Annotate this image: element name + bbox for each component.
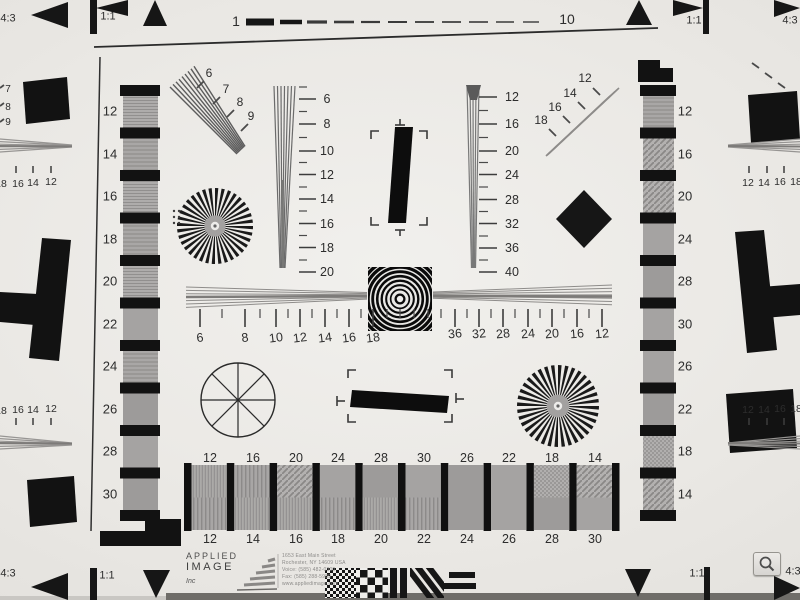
right-strip-labels-label: 18	[678, 445, 692, 458]
center-right-scale-ticks	[479, 97, 497, 272]
chart-shape	[246, 19, 274, 26]
horizontal-scale-right-labels-label: 12	[595, 327, 610, 341]
chart-shape	[120, 298, 160, 309]
chart-shape	[178, 216, 180, 218]
chart-shape	[577, 465, 612, 498]
bottom-strip-bottom-labels-label: 28	[545, 533, 559, 546]
chart-shape	[192, 498, 227, 531]
chart-shape	[178, 222, 180, 224]
chart-shape	[227, 463, 235, 531]
left-gray-strip	[120, 85, 160, 521]
bottom-strip-top-labels-label: 20	[289, 452, 303, 465]
center-left-scale-labels-label: 6	[324, 93, 331, 106]
chart-shape	[643, 479, 674, 511]
left-strip-labels-label: 20	[103, 275, 117, 288]
edge-rulers-right-bottom-label: 18	[790, 404, 800, 415]
chart-shape	[728, 443, 800, 444]
left-edge-wedge-labels-label: 7	[5, 85, 11, 95]
chart-shape	[388, 21, 407, 23]
chart-shape	[123, 309, 158, 341]
chart-shape	[123, 436, 158, 468]
chart-shape	[534, 465, 569, 498]
ratio-bar	[90, 0, 97, 34]
horizontal-scale-right-labels-label: 20	[545, 327, 560, 341]
chart-shape	[123, 181, 158, 213]
upper-left-siemens-star	[177, 188, 253, 264]
chart-shape	[241, 124, 248, 131]
chart-shape	[643, 309, 674, 341]
chart-shape	[280, 20, 302, 25]
chart-shape	[778, 83, 785, 88]
spoked-circle	[201, 363, 275, 437]
top-right-ratio-label: 1:1	[686, 16, 701, 27]
chart-shape	[184, 463, 192, 531]
bottom-strip-bottom-labels-label: 26	[502, 533, 516, 546]
chart-shape	[173, 210, 175, 212]
chart-shape	[94, 28, 658, 47]
dot-cluster	[173, 210, 180, 224]
edge-rulers-right-top-label: 18	[790, 177, 800, 188]
bottom-strip-top-labels-label: 16	[246, 452, 260, 465]
chart-shape	[186, 296, 367, 297]
chart-shape	[192, 465, 227, 498]
chart-shape	[397, 296, 403, 302]
chart-shape	[0, 119, 4, 122]
bottom-strip-bottom-labels-label: 30	[588, 533, 602, 546]
center-right-scale-labels-label: 28	[505, 193, 519, 206]
logo-inc-text: Inc	[186, 578, 195, 585]
bottom-strip-bottom-labels-label: 24	[460, 533, 474, 546]
aspect-left-triangle	[31, 2, 68, 28]
center-left-scale-labels-label: 12	[320, 168, 334, 181]
ratio-bar	[703, 0, 709, 34]
chart-shape	[419, 131, 427, 139]
horizontal-scale-left-labels-label: 6	[196, 331, 204, 344]
left-edge-wedge-labels-label: 8	[5, 103, 11, 113]
chart-shape	[556, 404, 559, 407]
left-strip-labels-label: 18	[103, 232, 117, 245]
logo-address-line: Fax: (585) 288-5989	[282, 575, 331, 580]
chart-shape	[448, 498, 483, 531]
chart-graphics	[0, 0, 800, 600]
chart-shape	[640, 468, 676, 479]
horizontal-scale-right-labels-label: 36	[448, 327, 463, 341]
black-fiducial	[100, 519, 181, 546]
edge-rulers-right-top-label: 14	[758, 178, 770, 189]
bottom-right-aspect-label: 4:3	[785, 567, 800, 578]
upper-right-diagonal-wedge	[546, 88, 619, 156]
upper-left-wedge-labels-label: 8	[237, 96, 244, 108]
chart-shape	[320, 498, 355, 531]
chart-shape	[643, 436, 674, 468]
chart-shape	[640, 340, 676, 351]
center-right-scale-labels-label: 40	[505, 266, 519, 279]
horizontal-wedge-left	[186, 287, 367, 307]
chart-shape	[569, 463, 577, 531]
left-strip-labels-label: 30	[103, 487, 117, 500]
center-right-scale-labels-label: 20	[505, 145, 519, 158]
horizontal-scale-left-labels-label: 12	[292, 331, 307, 345]
left-strip-labels-label: 28	[103, 445, 117, 458]
bottom-right-ratio-label: 1:1	[689, 569, 704, 580]
chart-shape	[268, 559, 275, 561]
chart-shape	[406, 465, 441, 498]
chart-shape	[549, 129, 556, 136]
chart-shape	[523, 21, 539, 22]
chart-shape	[398, 463, 406, 531]
ratio-bar	[90, 568, 97, 600]
vertical-tilted-bar	[371, 119, 427, 236]
top-scale-start-label: 1	[232, 14, 240, 28]
center-right-scale-labels-label: 12	[505, 91, 519, 104]
center-right-scale-labels-label: 36	[505, 242, 519, 255]
chart-shape	[593, 88, 600, 95]
chart-shape	[120, 128, 160, 139]
chart-shape	[355, 463, 363, 531]
chart-shape	[170, 87, 237, 154]
chart-shape	[441, 463, 449, 531]
bottom-strip-bottom-labels-label: 16	[289, 533, 303, 546]
logo-address-line: Voice: (585) 482-0300	[282, 568, 335, 573]
chart-shape	[640, 298, 676, 309]
horizontal-tilted-bar	[337, 370, 464, 422]
chart-shape	[449, 572, 475, 578]
horizontal-scale-right-labels-label: 28	[496, 327, 511, 341]
chart-shape	[262, 565, 275, 567]
chart-shape	[120, 85, 160, 96]
upper-left-wedge-labels-label: 6	[206, 67, 213, 79]
upper-left-wedge-labels-label: 9	[248, 110, 255, 122]
chart-shape	[563, 116, 570, 123]
chart-shape	[123, 224, 158, 256]
right-strip-labels-label: 16	[678, 147, 692, 160]
right-strip-labels-label: 22	[678, 402, 692, 415]
chart-shape	[728, 146, 800, 147]
logo-address-line: Rochester, NY 14609 USA	[282, 561, 346, 566]
horizontal-scale-left-labels-label: 16	[341, 331, 356, 345]
edge-rulers-left-top-label: 18	[0, 179, 7, 190]
top-left-aspect-label: 4:3	[0, 14, 15, 25]
diamond	[556, 190, 612, 248]
chart-shape	[388, 127, 413, 223]
chart-shape	[444, 370, 452, 378]
black-fiducial	[23, 77, 70, 124]
chart-shape	[237, 589, 277, 590]
logo-image-text: IMAGE	[186, 562, 234, 573]
chart-shape	[473, 85, 474, 268]
chart-shape	[173, 222, 175, 224]
chart-shape	[363, 465, 398, 498]
chart-shape	[643, 224, 674, 256]
bottom-strip-top-labels-label: 24	[331, 452, 345, 465]
center-right-scale-labels-label: 16	[505, 118, 519, 131]
zone-plate-rings	[357, 256, 443, 342]
chart-shape	[640, 170, 676, 181]
ratio-bar	[704, 567, 710, 600]
center-left-scale-ticks	[299, 87, 316, 272]
chart-shape	[91, 57, 100, 531]
chart-shape	[640, 425, 676, 436]
chart-shape	[120, 170, 160, 181]
coarse-checkerboard	[356, 568, 388, 598]
chart-shape	[123, 266, 158, 298]
center-right-scale-labels-label: 32	[505, 217, 519, 230]
bottom-left-ratio-label: 1:1	[99, 571, 114, 582]
chart-shape	[442, 21, 461, 23]
bottom-strip-bottom-labels-label: 18	[331, 533, 345, 546]
magnifier-icon	[756, 554, 778, 574]
left-strip-labels-label: 12	[103, 105, 117, 118]
chart-shape	[348, 370, 356, 378]
top-left-ratio-label: 1:1	[100, 12, 115, 23]
edge-rulers-right-bottom-label: 14	[758, 405, 770, 416]
bottom-aspect-left-triangle	[31, 573, 68, 600]
edge-rulers-right-bottom-label: 16	[774, 404, 786, 415]
bottom-strip-top-labels-label: 28	[374, 452, 388, 465]
chart-shape	[307, 20, 327, 23]
chart-shape	[640, 510, 676, 521]
chart-shape	[371, 217, 379, 225]
chart-shape	[213, 224, 216, 227]
chart-shape	[348, 414, 356, 422]
horizontal-scale-left-labels-label: 18	[365, 331, 380, 345]
chart-shape	[283, 180, 284, 268]
chart-shape	[320, 465, 355, 498]
right-strip-labels-label: 28	[678, 275, 692, 288]
chart-shape	[120, 383, 160, 394]
left-strip-labels-label: 22	[103, 317, 117, 330]
chart-shape	[0, 85, 4, 88]
chart-shape	[256, 571, 275, 573]
chart-shape	[444, 414, 452, 422]
bottom-strip-top-labels-label: 18	[545, 452, 559, 465]
logo-mark	[237, 554, 278, 590]
center-left-scale-labels-label: 16	[320, 217, 334, 230]
black-diamond	[556, 190, 612, 248]
chart-shape	[491, 498, 526, 531]
bottom-strip-top-labels-label: 30	[417, 452, 431, 465]
horizontal-wedge-right	[433, 285, 612, 305]
upper-left-wedge-labels-label: 7	[223, 83, 230, 95]
chart-shape	[120, 468, 160, 479]
bottom-strip-top-labels-label: 22	[502, 452, 516, 465]
center-left-scale-labels-label: 10	[320, 145, 334, 158]
center-left-scale-labels-label: 8	[324, 118, 331, 131]
upper-right-wedge-labels-label: 12	[578, 72, 591, 84]
chart-shape	[765, 73, 772, 78]
chart-shape	[400, 568, 407, 598]
chart-shape	[120, 255, 160, 266]
chart-shape	[334, 21, 354, 24]
right-strip-labels-label: 14	[678, 487, 692, 500]
bottom-strip-top-labels-label: 14	[588, 452, 602, 465]
chart-shape	[496, 21, 514, 23]
chart-shape	[415, 21, 434, 23]
bottom-strip-bottom-labels-label: 12	[203, 533, 217, 546]
chart-shape	[640, 128, 676, 139]
chart-shape	[491, 465, 526, 498]
chart-shape	[390, 568, 397, 598]
black-fiducial	[0, 292, 38, 325]
top-right-up-triangle	[626, 0, 652, 25]
zoom-button[interactable]	[753, 552, 781, 576]
chart-shape	[123, 96, 158, 128]
chart-shape	[277, 498, 312, 531]
chart-shape	[350, 390, 449, 413]
bottom-strip-bottom-labels-label: 20	[374, 533, 388, 546]
chart-shape	[443, 583, 476, 589]
black-fiducial	[748, 91, 800, 143]
chart-shape	[250, 577, 275, 579]
chart-shape	[534, 498, 569, 531]
chart-shape	[643, 266, 674, 298]
chart-shape	[120, 340, 160, 351]
chart-shape	[0, 103, 4, 106]
chart-shape	[227, 110, 234, 117]
logo-applied-text: APPLIED	[186, 552, 238, 561]
center-left-scale-labels-label: 20	[320, 266, 334, 279]
chart-shape	[484, 463, 492, 531]
center-left-scale-labels-label: 14	[320, 193, 334, 206]
chart-shape	[752, 63, 759, 68]
chart-shape	[234, 465, 269, 498]
edge-rulers-left-top-label: 14	[27, 178, 39, 189]
chart-shape	[277, 465, 312, 498]
top-right-aspect-label: 4:3	[782, 16, 797, 27]
chart-shape	[448, 465, 483, 498]
black-fiducial	[761, 284, 800, 318]
edge-rulers-left-bottom-label: 16	[12, 405, 24, 416]
chart-shape	[640, 213, 676, 224]
chart-shape	[643, 394, 674, 426]
upper-right-wedge-labels-label: 18	[534, 114, 547, 126]
chart-shape	[312, 463, 320, 531]
horizontal-scale-left-labels-label: 8	[241, 331, 249, 344]
chart-shape	[640, 383, 676, 394]
chart-shape	[643, 181, 674, 213]
chart-shape	[178, 210, 180, 212]
right-strip-labels-label: 30	[678, 317, 692, 330]
top-dash-scale	[246, 19, 539, 26]
chart-shape	[363, 498, 398, 531]
chart-shape	[120, 425, 160, 436]
chart-shape	[643, 96, 674, 128]
chart-shape	[433, 296, 612, 297]
logo-address-line: 1653 East Main Street	[282, 554, 336, 559]
chart-shape	[612, 463, 620, 531]
logo-address-line: www.appliedimage.com	[282, 582, 339, 587]
chart-shape	[0, 146, 72, 147]
bottom-strip-top-labels-label: 12	[203, 452, 217, 465]
horizontal-scale-right-labels-label: 16	[570, 327, 585, 341]
edge-rulers-left-bottom-label: 14	[27, 405, 39, 416]
chart-shape	[550, 88, 620, 153]
chart-shape	[120, 213, 160, 224]
edge-rulers-left-bottom-label: 12	[45, 404, 57, 415]
center-right-scale-labels-label: 24	[505, 168, 519, 181]
right-strip-labels-label: 20	[678, 190, 692, 203]
chart-shape	[643, 139, 674, 171]
top-scale-end-label: 10	[559, 12, 575, 26]
right-strip-labels-label: 24	[678, 232, 692, 245]
chart-shape	[270, 463, 278, 531]
left-strip-labels-label: 26	[103, 402, 117, 415]
center-left-scale-labels-label: 18	[320, 241, 334, 254]
chart-shape	[0, 443, 72, 444]
right-gray-strip	[640, 85, 676, 521]
chart-shape	[640, 85, 676, 96]
left-strip-labels-label: 24	[103, 360, 117, 373]
top-left-up-triangle	[143, 0, 167, 26]
chart-shape	[577, 498, 612, 531]
chart-shape	[123, 394, 158, 426]
horizontal-scale-right-labels-label: 24	[521, 327, 536, 341]
center-right-vertical-wedge	[466, 85, 481, 268]
upper-right-wedge-labels-label: 16	[548, 101, 561, 113]
chart-shape	[643, 351, 674, 383]
bottom-left-down-triangle	[143, 570, 170, 598]
chart-shape	[182, 77, 241, 151]
chart-shape	[123, 479, 158, 511]
black-fiducial	[638, 60, 673, 82]
edge-rulers-right-bottom-label: 12	[742, 405, 754, 416]
chart-shape	[406, 498, 441, 531]
chart-shape	[469, 21, 488, 23]
chart-shape	[123, 351, 158, 383]
chart-shape	[371, 131, 379, 139]
upper-right-wedge-labels-label: 14	[563, 87, 576, 99]
chart-shape	[640, 255, 676, 266]
chart-shape	[173, 216, 175, 218]
edge-rulers-right-top-label: 16	[774, 177, 786, 188]
left-strip-labels-label: 16	[103, 190, 117, 203]
chart-shape	[123, 139, 158, 171]
black-fiducial	[27, 476, 77, 527]
chart-shape	[244, 583, 275, 585]
left-edge-wedge-labels-label: 9	[5, 118, 11, 128]
center-zone-plate	[357, 256, 443, 342]
chart-shape	[186, 294, 367, 295]
chart-shape	[361, 21, 380, 23]
horizontal-scale-right-labels-label: 32	[472, 327, 487, 341]
bottom-left-aspect-label: 4:3	[0, 569, 15, 580]
edge-rulers-left-top-label: 12	[45, 177, 57, 188]
test-chart-photo: 4:3 1:1 1 10 1:1 4:3 4:3 1:1 1:1 4:3 APP…	[0, 0, 800, 600]
horizontal-scale-left-labels-label: 10	[268, 331, 283, 345]
chart-shape	[234, 498, 269, 531]
bottom-strip-bottom-labels-label: 14	[246, 533, 260, 546]
right-strip-labels-label: 26	[678, 360, 692, 373]
center-left-vertical-wedge	[274, 86, 295, 268]
right-strip-labels-label: 12	[678, 105, 692, 118]
bottom-frequency-strip	[184, 463, 620, 531]
bottom-strip-top-labels-label: 26	[460, 452, 474, 465]
chart-shape	[526, 463, 534, 531]
edge-rulers-left-bottom-label: 18	[0, 406, 7, 417]
chart-shape	[0, 596, 166, 600]
bottom-right-down-triangle	[625, 569, 651, 597]
horizontal-scale-left-labels-label: 14	[317, 331, 332, 345]
chart-shape	[578, 102, 585, 109]
chart-shape	[419, 217, 427, 225]
chart-shape	[120, 510, 160, 521]
edge-rulers-left-top-label: 16	[12, 179, 24, 190]
lower-right-siemens-star	[517, 365, 599, 447]
bottom-strip-bottom-labels-label: 22	[417, 533, 431, 546]
left-strip-labels-label: 14	[103, 147, 117, 160]
edge-rulers-right-top-label: 12	[742, 178, 754, 189]
